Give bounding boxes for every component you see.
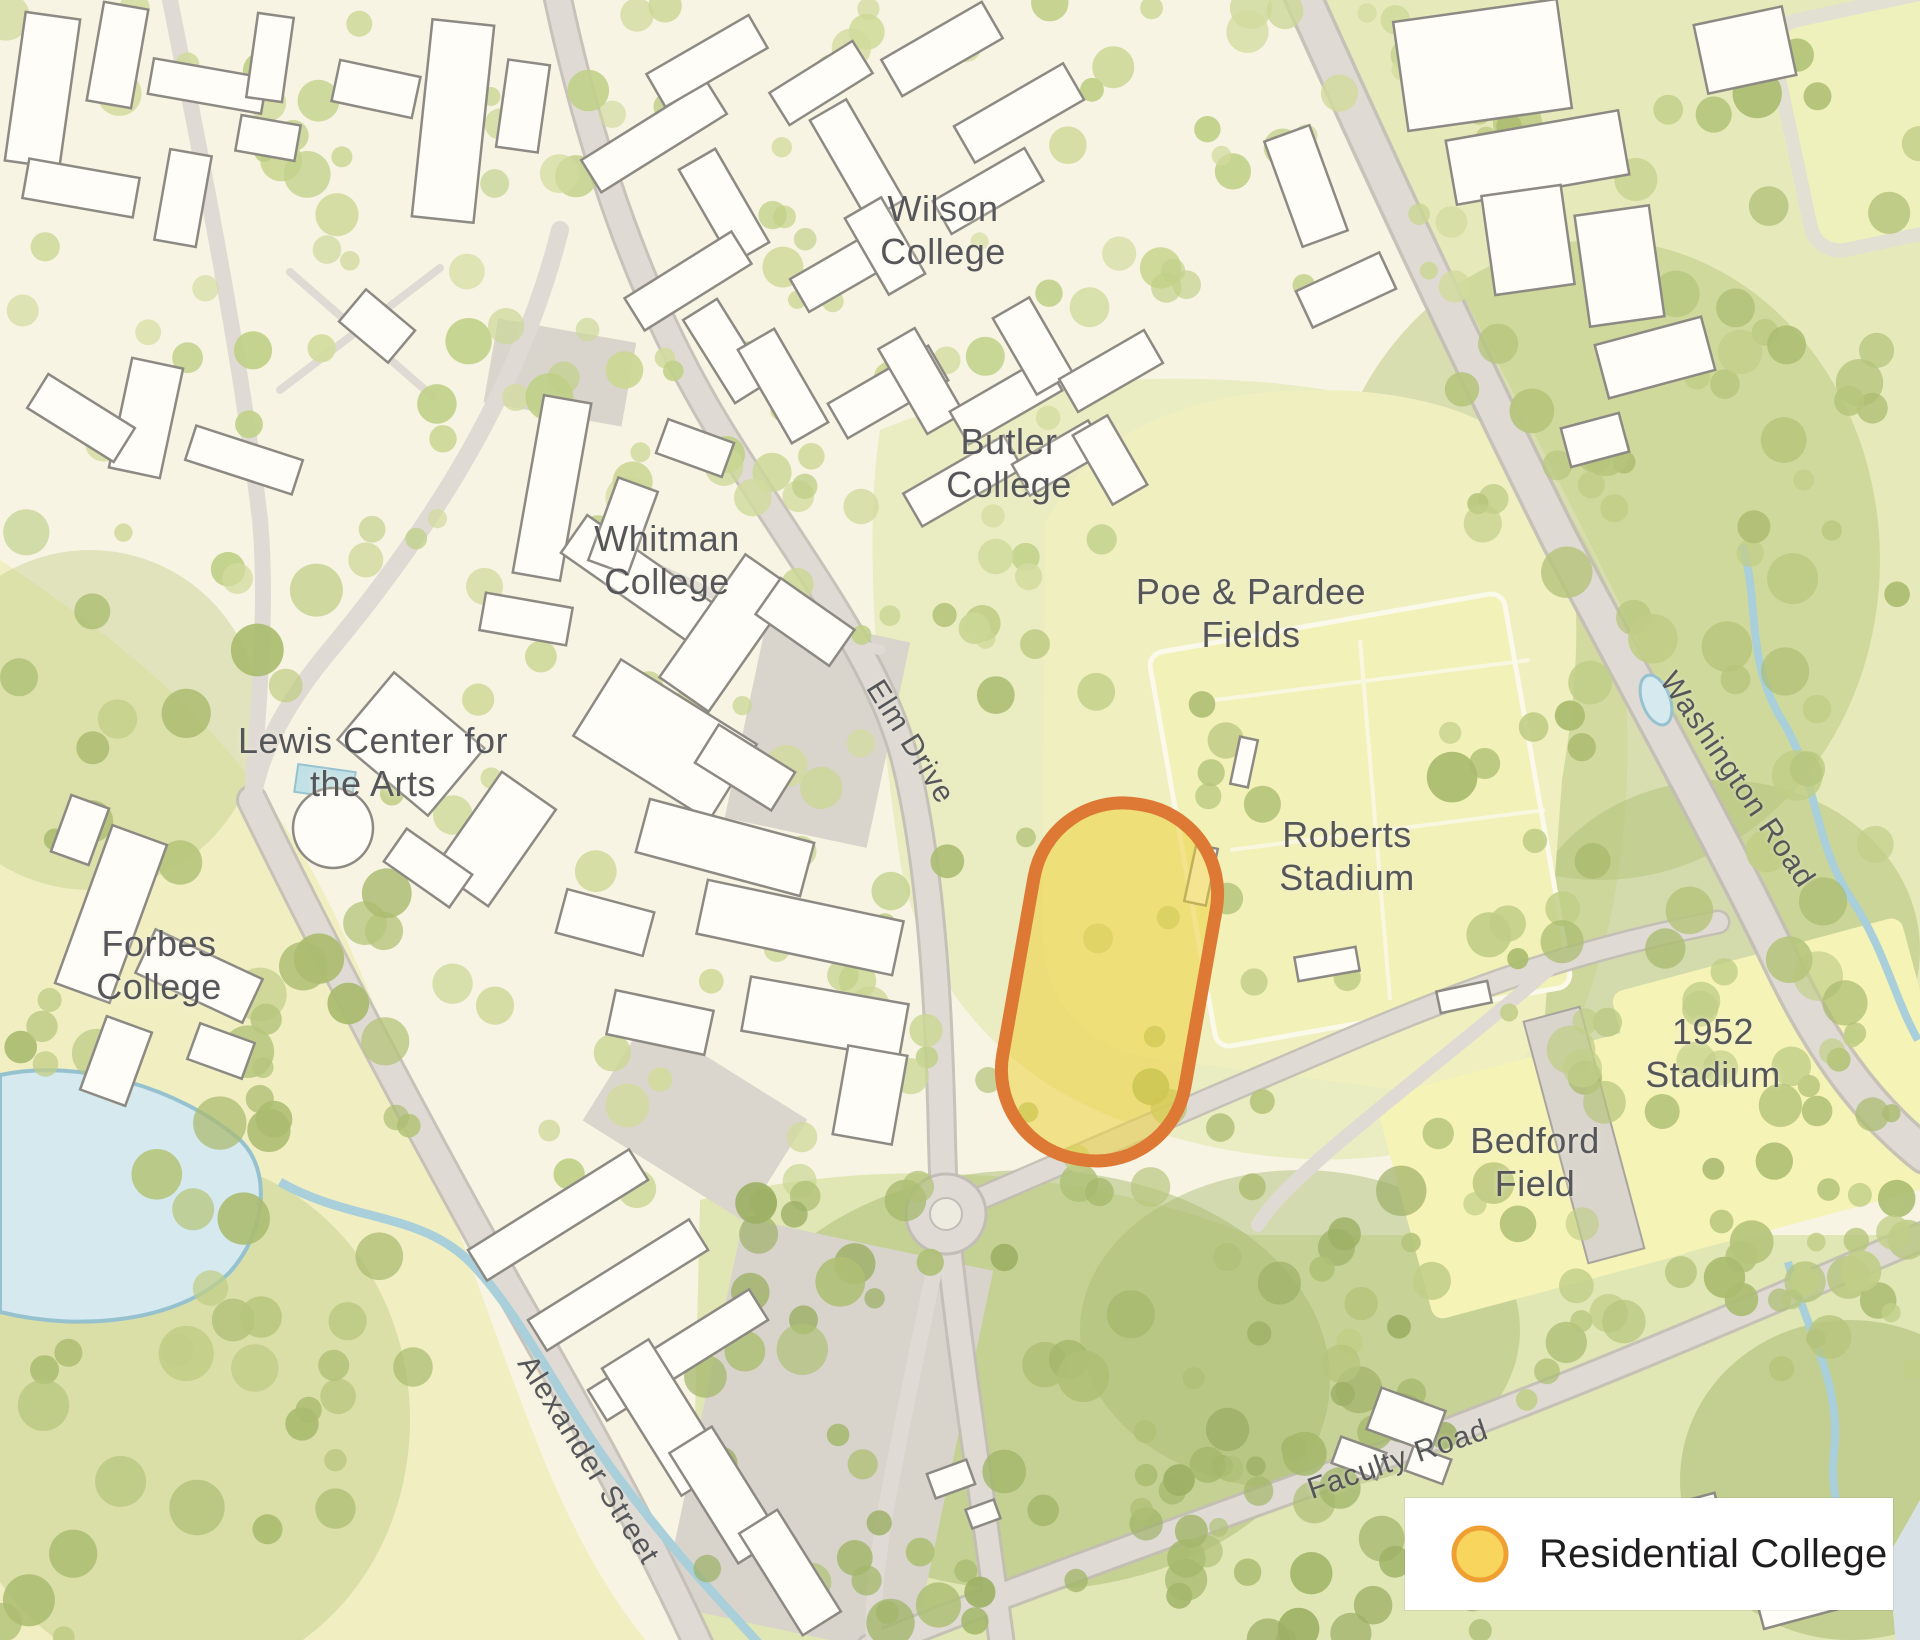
building: [27, 374, 135, 462]
building: [933, 148, 1044, 234]
building: [496, 60, 550, 153]
building: [154, 149, 211, 247]
building: [1481, 185, 1574, 295]
building: [246, 13, 293, 102]
building: [338, 672, 485, 815]
building: [810, 99, 904, 220]
round-building: [293, 788, 373, 868]
building: [1296, 252, 1396, 327]
map-graphic: [0, 0, 1920, 1640]
campus-map: Wilson College Butler College Whitman Co…: [0, 0, 1920, 1640]
legend-label: Residential College: [1539, 1532, 1887, 1577]
building: [1393, 0, 1572, 131]
building: [833, 1045, 908, 1144]
building: [556, 889, 655, 956]
building: [479, 593, 572, 646]
building: [741, 977, 908, 1059]
building: [332, 60, 421, 118]
building: [1575, 205, 1665, 326]
building: [412, 19, 494, 222]
building: [881, 2, 1002, 96]
residential-college-marker-icon: [1451, 1525, 1509, 1583]
building: [22, 159, 139, 218]
building: [1264, 125, 1347, 247]
legend: Residential College: [1405, 1498, 1893, 1610]
